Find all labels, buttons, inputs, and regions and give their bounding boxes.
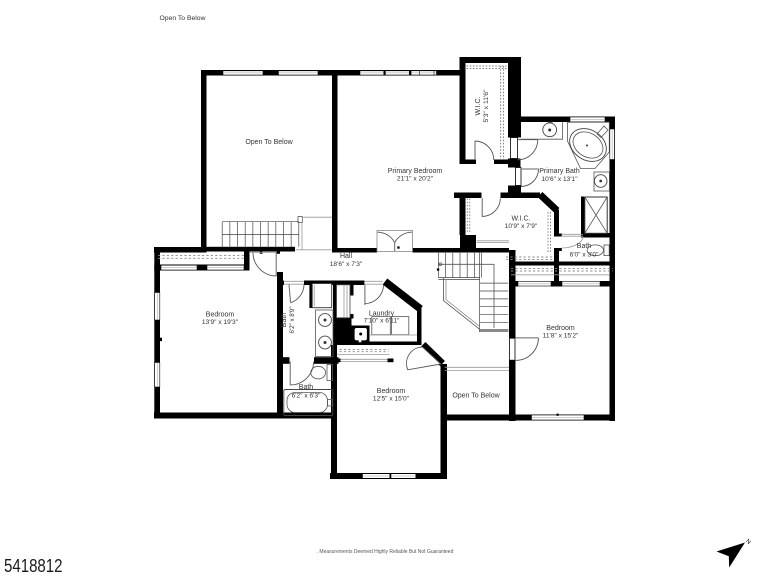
svg-text:21'1" x 20'2": 21'1" x 20'2"	[397, 176, 434, 183]
svg-text:Open To Below: Open To Below	[245, 139, 293, 146]
svg-text:11'8" x 15'2": 11'8" x 15'2"	[543, 333, 579, 340]
svg-text:Bath: Bath	[577, 243, 592, 250]
svg-text:Primary Bath: Primary Bath	[539, 168, 580, 175]
svg-text:. Measurements Deemed Highly R: . Measurements Deemed Highly Reliable Bu…	[317, 549, 454, 555]
svg-text:10'9" x 7'9": 10'9" x 7'9"	[505, 223, 538, 230]
svg-text:Bedroom: Bedroom	[377, 388, 406, 395]
svg-text:Bedroom: Bedroom	[546, 325, 575, 332]
svg-text:Laundry: Laundry	[369, 311, 395, 318]
svg-text:5418812: 5418812	[4, 556, 63, 576]
svg-text:6'2" x 6'3": 6'2" x 6'3"	[292, 393, 321, 400]
svg-text:Bedroom: Bedroom	[206, 312, 235, 319]
svg-text:18'6" x 7'3": 18'6" x 7'3"	[330, 261, 363, 268]
svg-text:Open To Below: Open To Below	[160, 15, 206, 22]
svg-text:5'3" x 11'6": 5'3" x 11'6"	[483, 89, 490, 123]
svg-text:Hall: Hall	[340, 253, 353, 260]
svg-text:6'0" x 3'0": 6'0" x 3'0"	[570, 252, 599, 259]
svg-text:12'5" x 15'0": 12'5" x 15'0"	[373, 396, 410, 403]
svg-text:6'2" x 8'9": 6'2" x 8'9"	[289, 306, 296, 333]
svg-text:Open To Below: Open To Below	[452, 393, 500, 400]
svg-text:Bath: Bath	[299, 384, 314, 391]
svg-text:W.I.C.: W.I.C.	[475, 96, 482, 115]
svg-text:W.I.C.: W.I.C.	[511, 216, 530, 223]
svg-text:7'10" x 6'11": 7'10" x 6'11"	[364, 318, 400, 325]
svg-text:10'6" x 13'1": 10'6" x 13'1"	[541, 176, 578, 183]
svg-text:Bath: Bath	[281, 313, 288, 328]
svg-text:13'9" x 19'3": 13'9" x 19'3"	[202, 319, 239, 326]
svg-text:Primary Bedroom: Primary Bedroom	[388, 168, 443, 175]
